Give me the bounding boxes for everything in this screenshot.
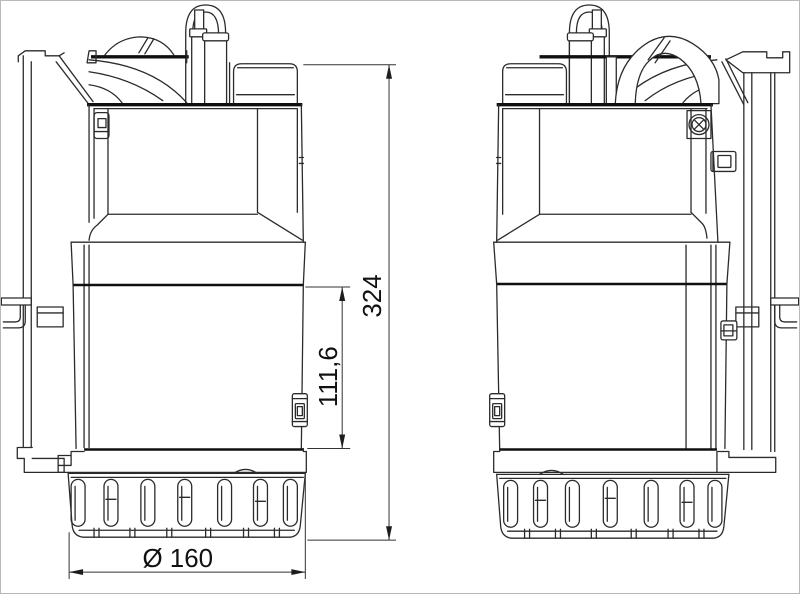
pump-outlet-tubes	[190, 10, 230, 104]
motor-housing	[494, 105, 730, 449]
mounting-plate-left	[1, 51, 93, 473]
pump-view-left	[1, 5, 307, 537]
housing-latch	[490, 394, 505, 427]
suction-strainer	[68, 469, 305, 537]
dim-partial-height-label: 111,6	[315, 346, 343, 407]
float-switch-cap	[503, 64, 567, 104]
housing-clip	[94, 113, 109, 139]
housing-latch	[292, 394, 307, 427]
side-latch	[721, 321, 737, 340]
motor-housing	[71, 105, 305, 449]
float-switch-cap	[234, 64, 298, 104]
mounting-plate-right	[722, 52, 799, 452]
dim-base-diameter-label: Ø 160	[142, 545, 213, 573]
dimension-overall-height: 324	[303, 65, 396, 540]
dim-overall-height-label: 324	[359, 274, 387, 317]
dimension-partial-height: 111,6	[305, 287, 350, 448]
technical-drawing-canvas: 324 111,6 Ø 160	[0, 0, 800, 594]
base-plate	[494, 448, 776, 472]
pump-view-right	[490, 5, 799, 538]
pump-hose	[87, 37, 189, 103]
suction-strainer	[497, 470, 729, 538]
base-plate	[58, 448, 306, 472]
